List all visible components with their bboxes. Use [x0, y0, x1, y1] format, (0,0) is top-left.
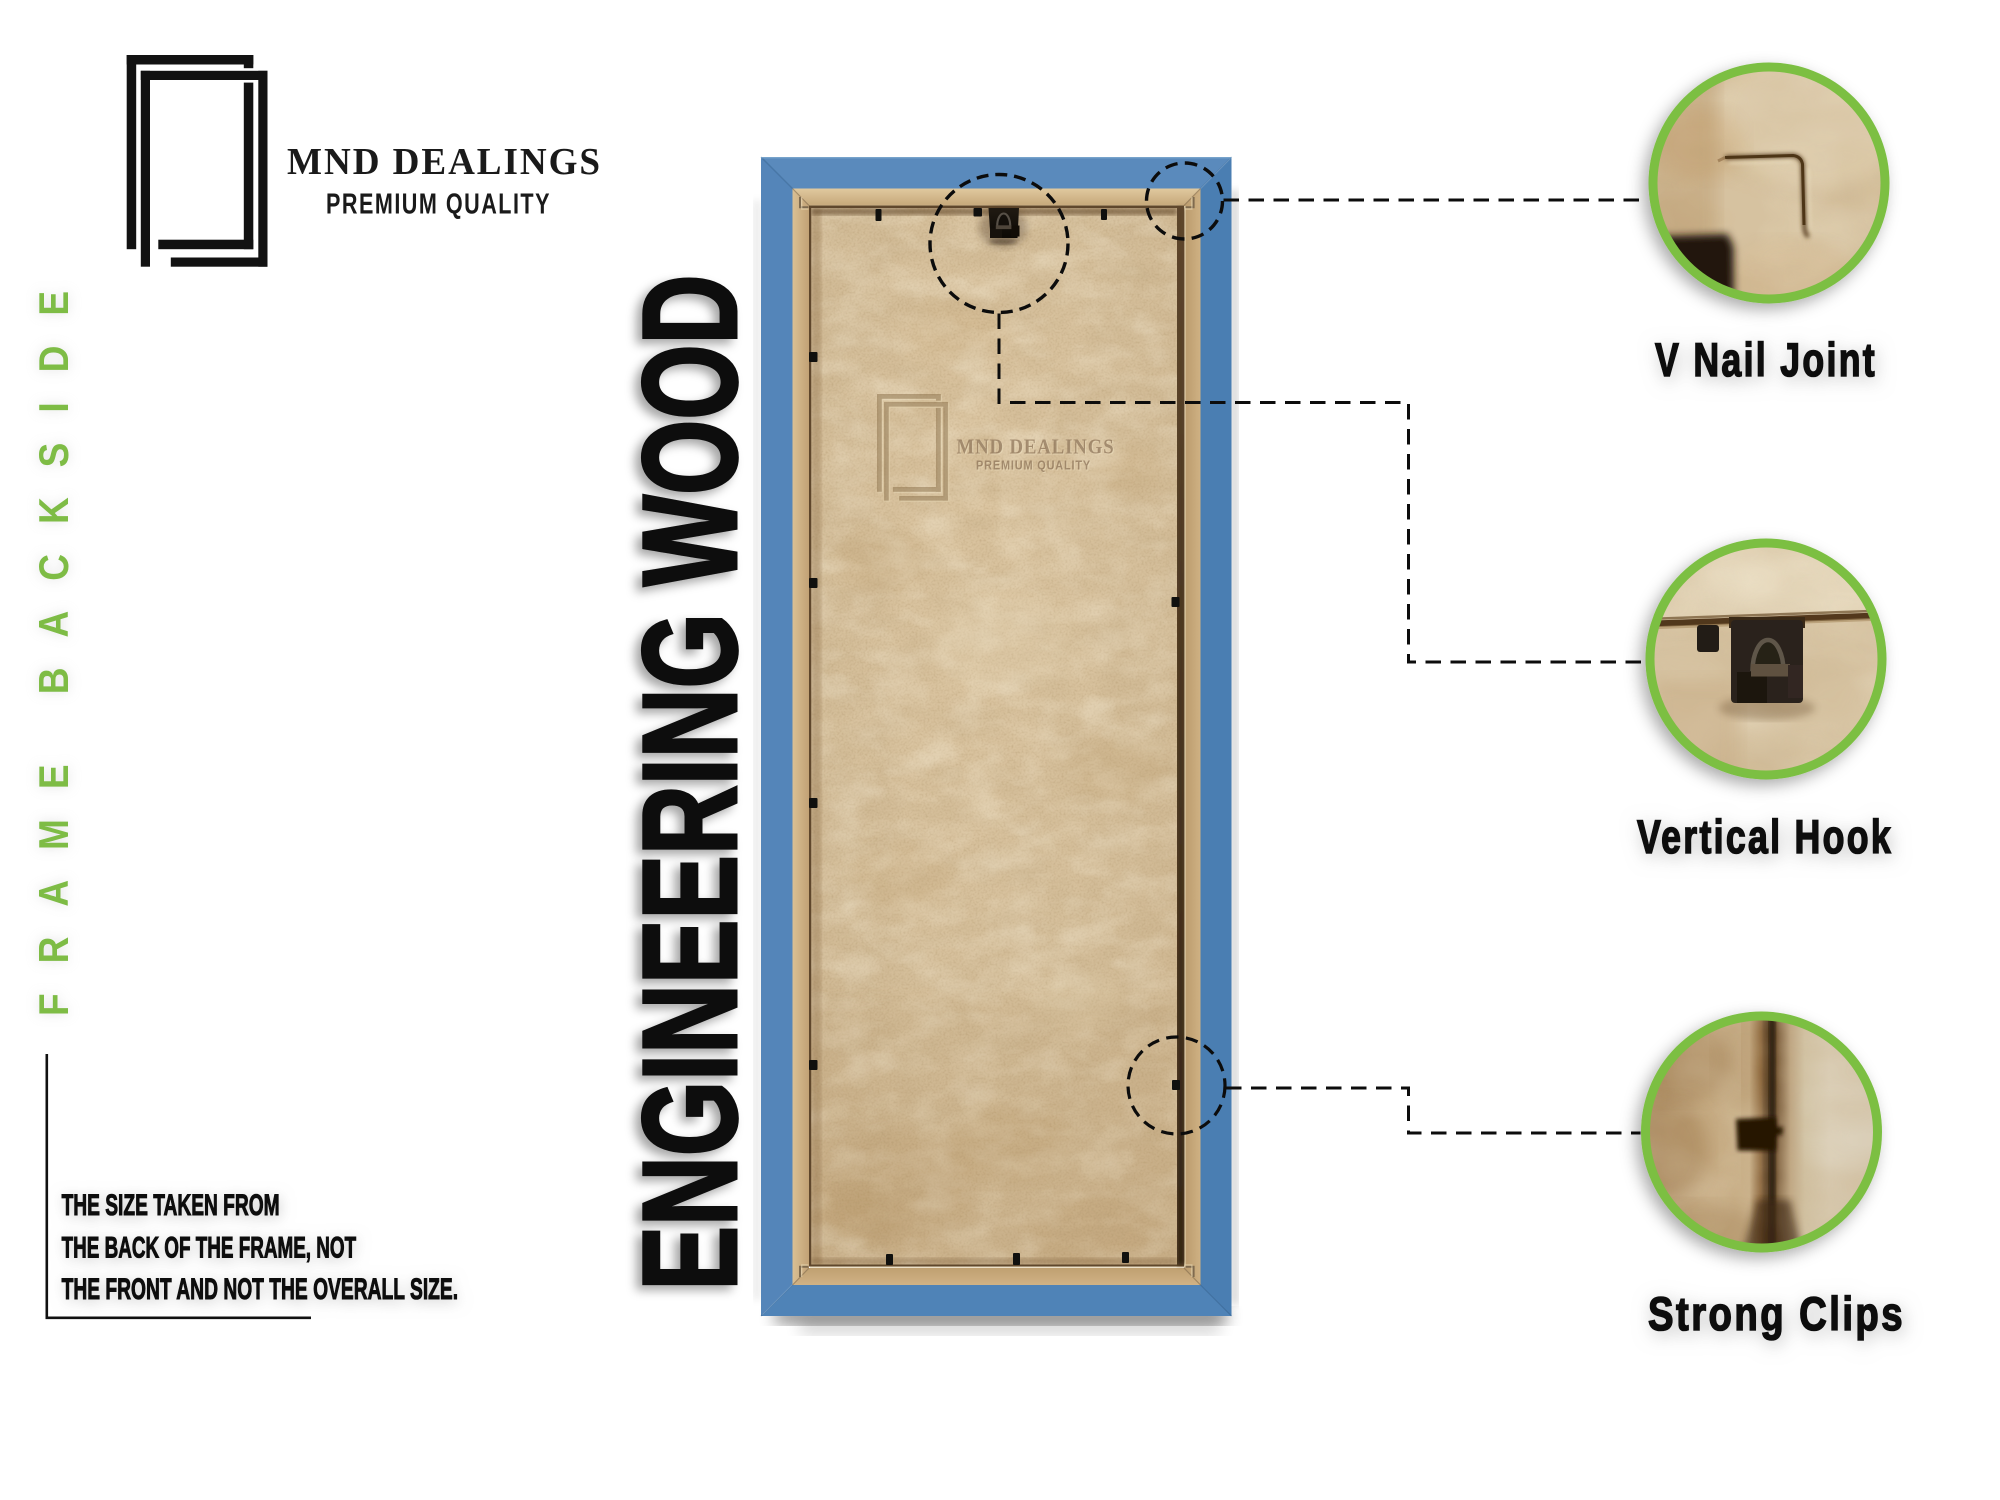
svg-text:ENGINEERING WOOD: ENGINEERING WOOD	[616, 275, 765, 1291]
svg-text:THE BACK OF THE FRAME, NOT: THE BACK OF THE FRAME, NOT	[62, 1232, 357, 1265]
svg-text:MND DEALINGS: MND DEALINGS	[957, 435, 1115, 459]
svg-text:PREMIUM QUALITY: PREMIUM QUALITY	[326, 189, 551, 221]
svg-text:V Nail Joint: V Nail Joint	[1655, 333, 1877, 386]
svg-text:THE FRONT AND NOT THE OVERALL: THE FRONT AND NOT THE OVERALL SIZE.	[62, 1273, 459, 1306]
svg-text:Strong Clips: Strong Clips	[1648, 1287, 1905, 1340]
svg-text:Vertical Hook: Vertical Hook	[1637, 810, 1893, 863]
svg-text:PREMIUM QUALITY: PREMIUM QUALITY	[976, 458, 1091, 473]
svg-text:MND DEALINGS: MND DEALINGS	[287, 141, 602, 183]
svg-text:FRAME BACKSIDE: FRAME BACKSIDE	[30, 261, 77, 1016]
svg-text:THE SIZE TAKEN FROM: THE SIZE TAKEN FROM	[62, 1189, 280, 1222]
